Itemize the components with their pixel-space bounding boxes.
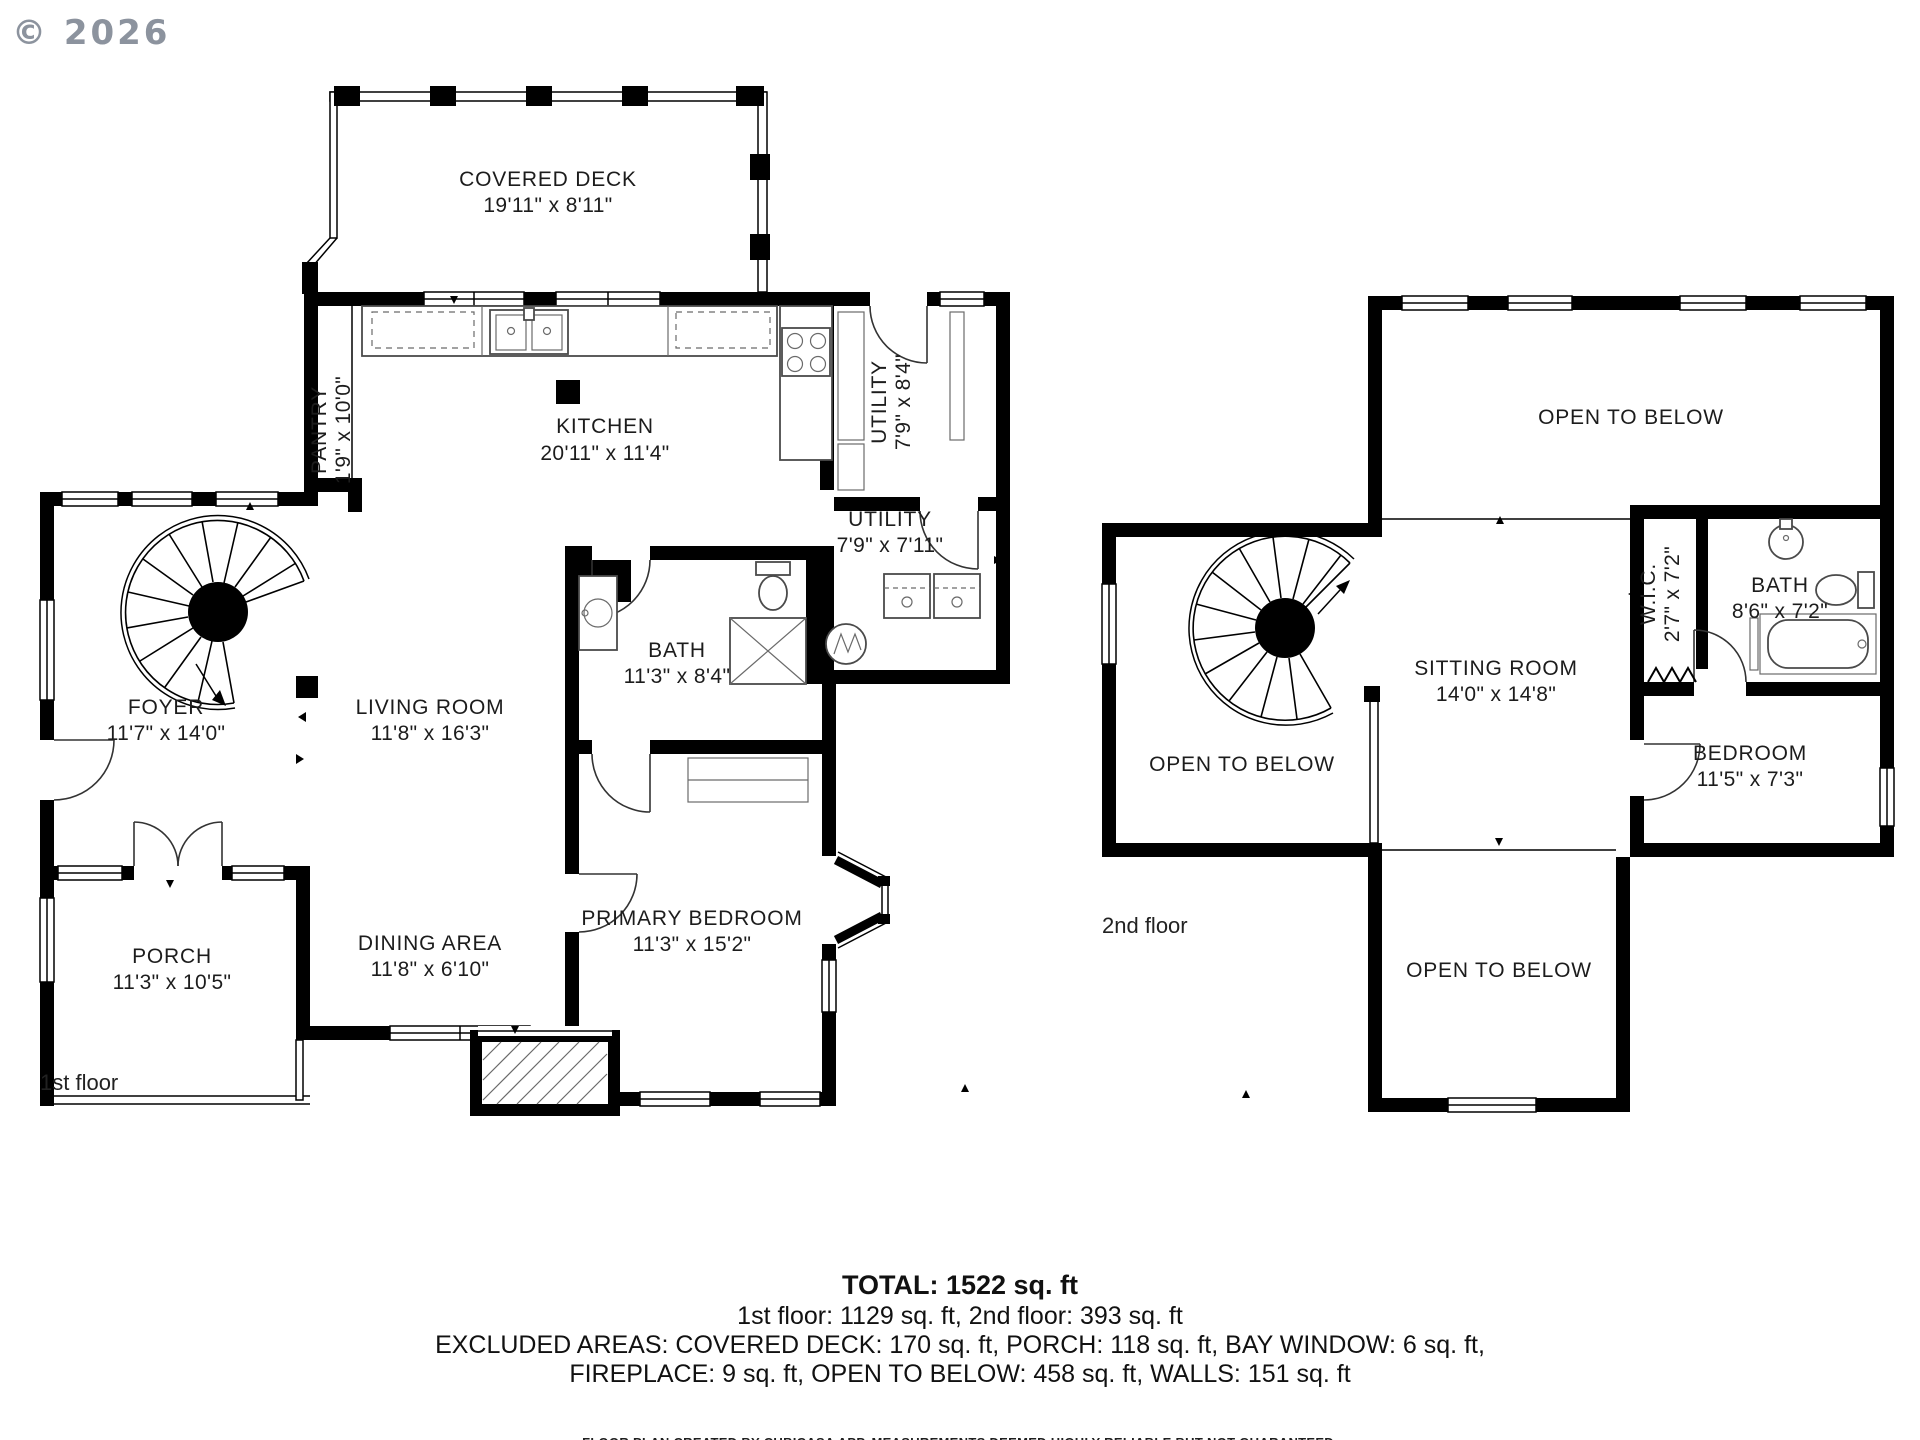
- floor1-tag: 1st floor: [40, 1070, 118, 1095]
- kitchen-counter: [362, 306, 777, 356]
- covered-deck-dims: 19'11" x 8'11": [483, 194, 612, 217]
- kitchen-dims: 20'11" x 11'4": [540, 442, 669, 465]
- water-heater: [826, 624, 866, 664]
- utility-upper-label: UTILITY: [868, 360, 891, 444]
- summary-excluded-1: EXCLUDED AREAS: COVERED DECK: 170 sq. ft…: [435, 1331, 1485, 1359]
- bedroom2-label: BEDROOM: [1693, 742, 1807, 765]
- dryer: [934, 574, 980, 618]
- floorplan-canvas: © 2026: [0, 0, 1920, 1440]
- copyright-text: © 2026: [12, 13, 170, 53]
- summary-floors: 1st floor: 1129 sq. ft, 2nd floor: 393 s…: [737, 1302, 1183, 1330]
- porch-label: PORCH: [132, 945, 212, 968]
- dining-area-dims: 11'8" x 6'10": [371, 958, 490, 981]
- summary-excluded-2: FIREPLACE: 9 sq. ft, OPEN TO BELOW: 458 …: [569, 1360, 1350, 1388]
- kitchen-label: KITCHEN: [556, 415, 654, 438]
- bath2-tub: [1760, 614, 1876, 674]
- bath2-label: BATH: [1751, 574, 1809, 597]
- primary-bedroom-dims: 11'3" x 15'2": [633, 933, 752, 956]
- kitchen-sink: [490, 308, 568, 354]
- kitchen-island-post: [556, 380, 580, 404]
- open-below-top-label: OPEN TO BELOW: [1538, 406, 1724, 429]
- bath1-toilet: [756, 562, 790, 610]
- bath1-dims: 11'3" x 8'4": [624, 665, 731, 688]
- column-post: [296, 676, 318, 698]
- bath1-label: BATH: [648, 639, 706, 662]
- summary-total: TOTAL: 1522 sq. ft: [842, 1270, 1078, 1300]
- fireplace: [476, 1026, 614, 1110]
- foyer-dims: 11'7" x 14'0": [107, 722, 226, 745]
- kitchen-utility-opening: [820, 490, 834, 546]
- bath2-dims: 8'6" x 7'2": [1732, 600, 1828, 623]
- pantry-label: PANTRY: [308, 386, 331, 474]
- sitting-room-label: SITTING ROOM: [1414, 657, 1578, 680]
- dining-area-label: DINING AREA: [358, 932, 502, 955]
- stove: [780, 306, 832, 460]
- wic-label: W.I.C.: [1637, 563, 1660, 625]
- utility-lower-dims: 7'9" x 7'11": [837, 534, 944, 557]
- washer: [884, 574, 930, 618]
- bedroom2-dims: 11'5" x 7'3": [1697, 768, 1804, 791]
- primary-bedroom-label: PRIMARY BEDROOM: [581, 907, 802, 930]
- summary-disclaimer: FLOOR PLAN CREATED BY CUBICASA APP. MEAS…: [582, 1435, 1338, 1440]
- porch-dims: 11'3" x 10'5": [113, 971, 232, 994]
- covered-deck-label: COVERED DECK: [459, 168, 637, 191]
- pantry-dims: 1'9" x 10'0": [332, 376, 355, 484]
- bath1-vanity-sink: [579, 576, 617, 650]
- floor2-tag: 2nd floor: [1102, 913, 1188, 938]
- foyer-label: FOYER: [128, 696, 204, 719]
- utility-lower-label: UTILITY: [848, 508, 932, 531]
- open-below-left-label: OPEN TO BELOW: [1149, 753, 1335, 776]
- living-room-dims: 11'8" x 16'3": [371, 722, 490, 745]
- wic-dims: 2'7" x 7'2": [1661, 546, 1684, 642]
- open-below-bottom-label: OPEN TO BELOW: [1406, 959, 1592, 982]
- living-room-label: LIVING ROOM: [356, 696, 505, 719]
- bath1-shower: [730, 618, 806, 684]
- utility-upper-dims: 7'9" x 8'4": [892, 354, 915, 450]
- sitting-room-dims: 14'0" x 14'8": [1436, 683, 1556, 706]
